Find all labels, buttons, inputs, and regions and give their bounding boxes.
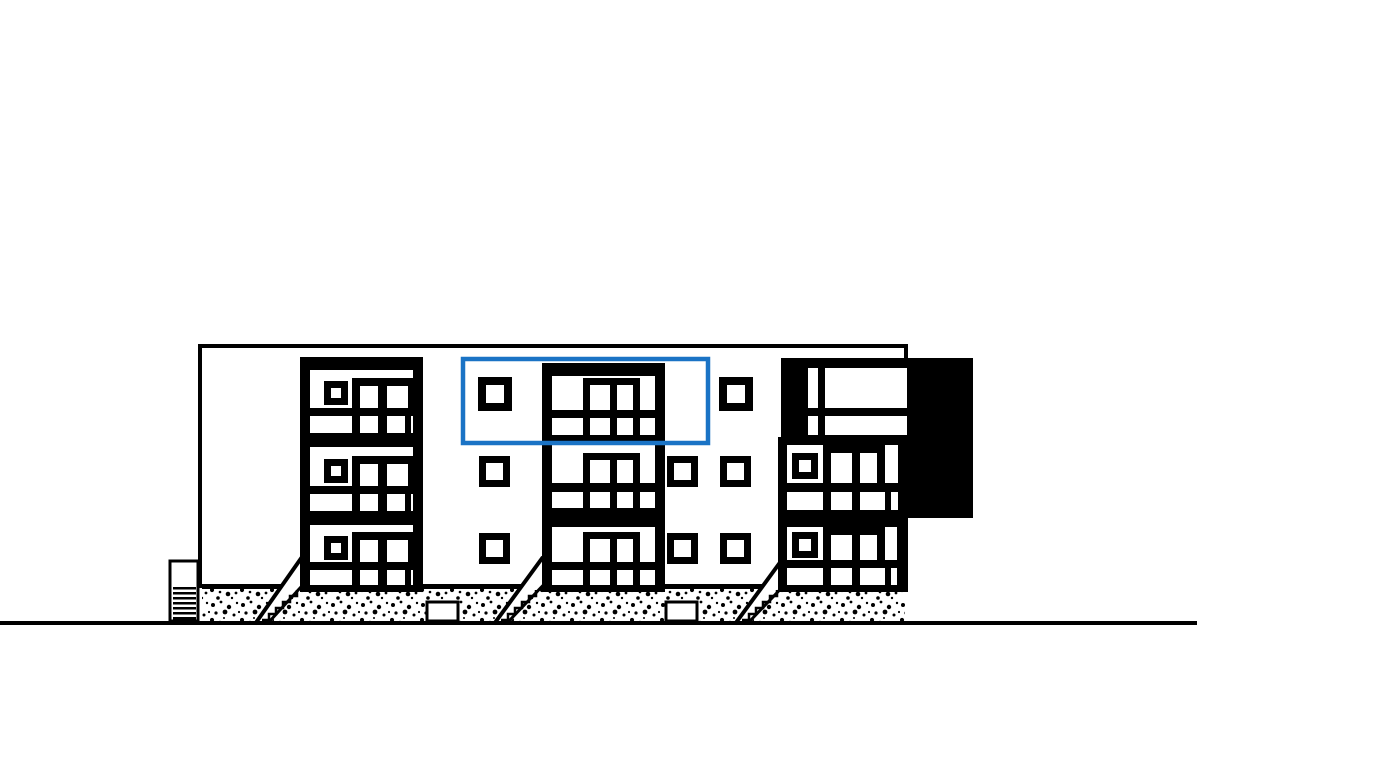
facade-window-f1-left <box>478 377 512 411</box>
facade-window-f3-right <box>720 533 751 564</box>
window-bay-center <box>542 363 665 592</box>
spandrel-band <box>310 486 413 494</box>
basement-lightwell-left <box>427 602 458 621</box>
window-bay-right <box>778 358 973 592</box>
window-mullion <box>818 368 825 435</box>
base-band <box>778 585 908 592</box>
base-band <box>300 585 423 592</box>
window-pane <box>831 453 852 483</box>
floor-band <box>300 433 423 447</box>
floor-band <box>542 508 665 527</box>
facade-window-f1-right <box>719 377 753 411</box>
facade-window-f3-left <box>479 533 510 564</box>
facade-window-f3-mid <box>667 533 698 564</box>
window-pane <box>360 540 378 562</box>
small-window-pane <box>331 543 341 553</box>
window-pane <box>860 453 877 483</box>
window-pane <box>387 464 408 486</box>
facade-window-f2-left <box>479 456 510 487</box>
spandrel-band <box>787 560 898 568</box>
window-pane <box>617 385 633 410</box>
facade-window-f2-right <box>720 456 751 487</box>
drawing-page <box>0 0 1374 773</box>
spandrel-band <box>310 562 413 570</box>
floor-band <box>542 363 665 376</box>
window-pane <box>617 539 633 562</box>
basement-lightwell-right <box>666 602 697 621</box>
spandrel-band <box>552 562 655 570</box>
base-band <box>542 585 665 592</box>
window-pane <box>590 385 610 410</box>
window-pane <box>360 464 378 486</box>
cellar-vent-grate <box>170 561 198 621</box>
stipple-texture <box>202 589 905 621</box>
floor-band <box>300 357 423 370</box>
elevation-drawing-canvas <box>0 0 1374 773</box>
window-pane <box>831 535 852 560</box>
window-pane <box>590 460 610 483</box>
window-bay-left <box>300 357 423 592</box>
floor-band <box>778 510 908 527</box>
window-transom <box>808 408 907 416</box>
window-pane <box>590 539 610 562</box>
spandrel-band <box>310 408 413 416</box>
small-window-pane <box>799 539 811 551</box>
window-pane <box>387 386 408 408</box>
window-pane <box>617 460 633 483</box>
window-pane <box>387 540 408 562</box>
corner-panel-window <box>808 368 907 435</box>
window-pane <box>860 535 877 560</box>
small-window-pane <box>331 388 341 398</box>
left-wall-line <box>198 344 202 588</box>
roof-line <box>198 344 908 348</box>
window-pane <box>360 386 378 408</box>
small-window-pane <box>799 460 811 472</box>
spandrel-band <box>787 483 898 492</box>
floor-band <box>300 511 423 525</box>
spandrel-band <box>552 483 655 492</box>
small-window-pane <box>331 466 341 476</box>
facade-window-f2-mid <box>667 456 698 487</box>
spandrel-band <box>552 410 655 418</box>
